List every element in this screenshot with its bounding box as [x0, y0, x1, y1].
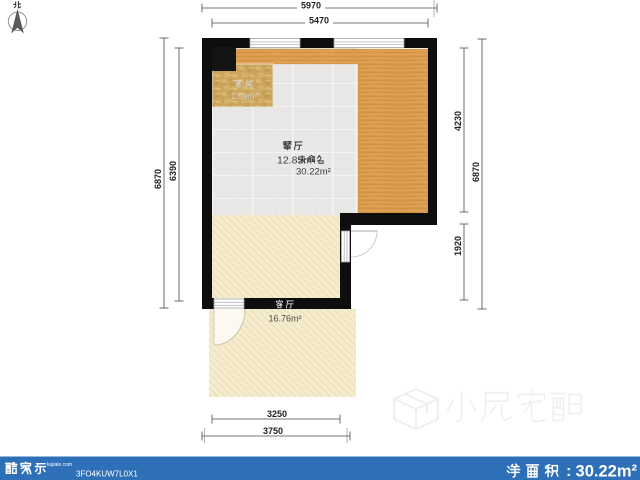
svg-text:30.22m²: 30.22m² — [296, 167, 331, 178]
svg-text:1920: 1920 — [453, 236, 463, 256]
svg-text:16.76m²: 16.76m² — [268, 314, 301, 324]
svg-text:1.59m²: 1.59m² — [231, 91, 258, 101]
svg-text:30.22m²: 30.22m² — [576, 463, 638, 480]
svg-text:3FO4KUW7L0X1: 3FO4KUW7L0X1 — [76, 470, 138, 479]
svg-text:6870: 6870 — [153, 169, 163, 189]
svg-text:3250: 3250 — [267, 409, 287, 419]
svg-text:6870: 6870 — [471, 162, 481, 182]
svg-text:3750: 3750 — [263, 426, 283, 436]
svg-text:kujiale.com: kujiale.com — [47, 462, 72, 468]
svg-text:6390: 6390 — [168, 161, 178, 181]
svg-text:4230: 4230 — [453, 111, 463, 131]
svg-text:5970: 5970 — [301, 0, 321, 10]
svg-text:5470: 5470 — [309, 15, 329, 25]
svg-text::: : — [566, 463, 571, 480]
